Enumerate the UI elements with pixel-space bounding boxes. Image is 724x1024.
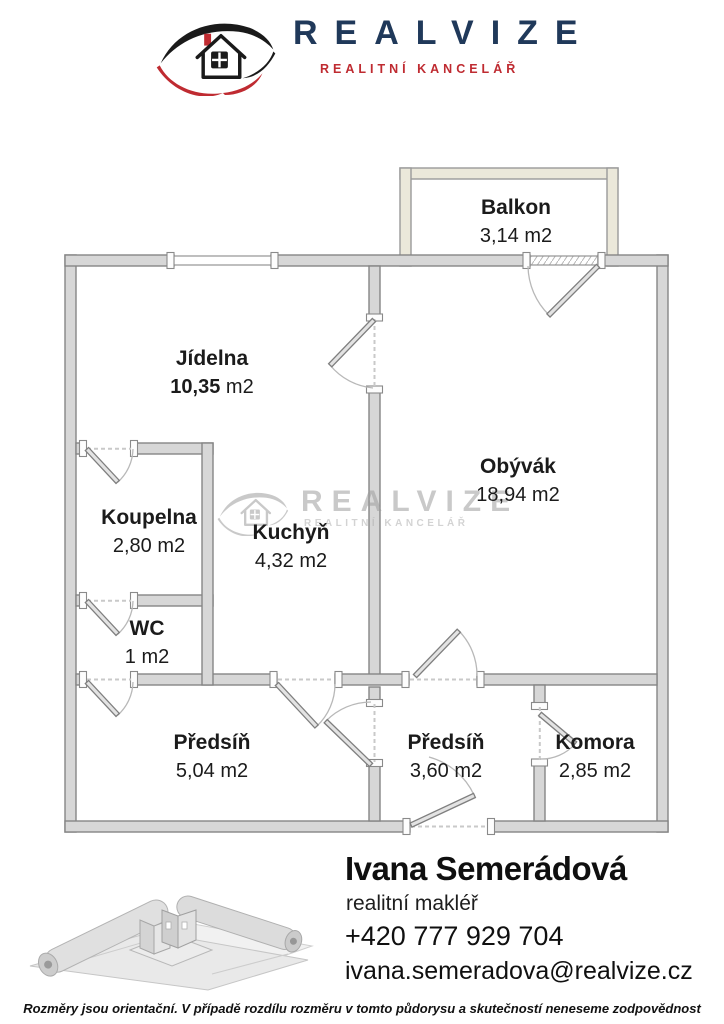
blueprint-illustration: [12, 862, 332, 992]
agent-email: ivana.semeradova@realvize.cz: [345, 957, 693, 986]
room-label-obyvak: Obývák 18,94 m2: [476, 452, 559, 510]
room-label-kuchyn: Kuchyň 4,32 m2: [252, 518, 329, 576]
balcony-door: [530, 256, 598, 265]
room-label-wc: WC 1 m2: [125, 614, 169, 672]
agent-role: realitní makléř: [346, 892, 478, 916]
agent-name: Ivana Semerádová: [345, 850, 627, 888]
room-label-predsin-1: Předsíň 5,04 m2: [173, 728, 250, 786]
room-label-koupelna: Koupelna 2,80 m2: [101, 503, 197, 561]
room-label-jidelna: Jídelna 10,35 m2: [170, 344, 253, 402]
window-jidelna: [174, 256, 271, 265]
room-label-balkon: Balkon 3,14 m2: [480, 193, 552, 251]
flyer-page: REALVIZE REALITNÍ KANCELÁŘ: [0, 0, 724, 1024]
room-label-komora: Komora 2,85 m2: [555, 728, 634, 786]
agent-phone: +420 777 929 704: [345, 921, 563, 952]
room-label-predsin-2: Předsíň 3,60 m2: [407, 728, 484, 786]
disclaimer-text: Rozměry jsou orientační. V případě rozdí…: [0, 1001, 724, 1016]
